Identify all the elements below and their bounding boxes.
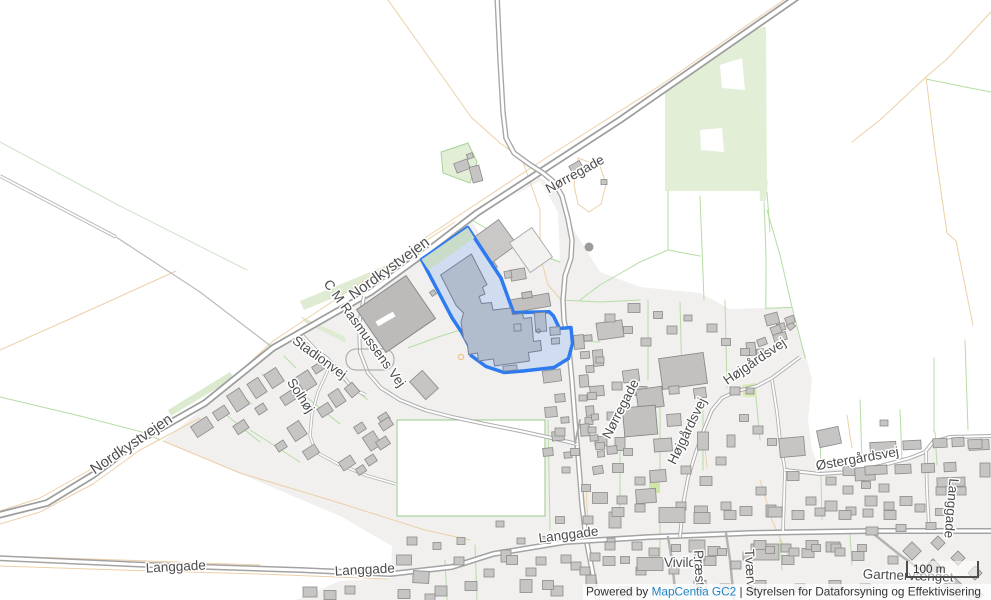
svg-text:Langgade: Langgade [145, 557, 206, 575]
svg-text:Langgade: Langgade [334, 560, 395, 578]
svg-text:Powered by MapCentia GC2 | Sty: Powered by MapCentia GC2 | Styrelsen for… [586, 585, 981, 599]
svg-text:Vivild: Vivild [664, 555, 696, 570]
svg-text:100 m: 100 m [913, 563, 945, 576]
